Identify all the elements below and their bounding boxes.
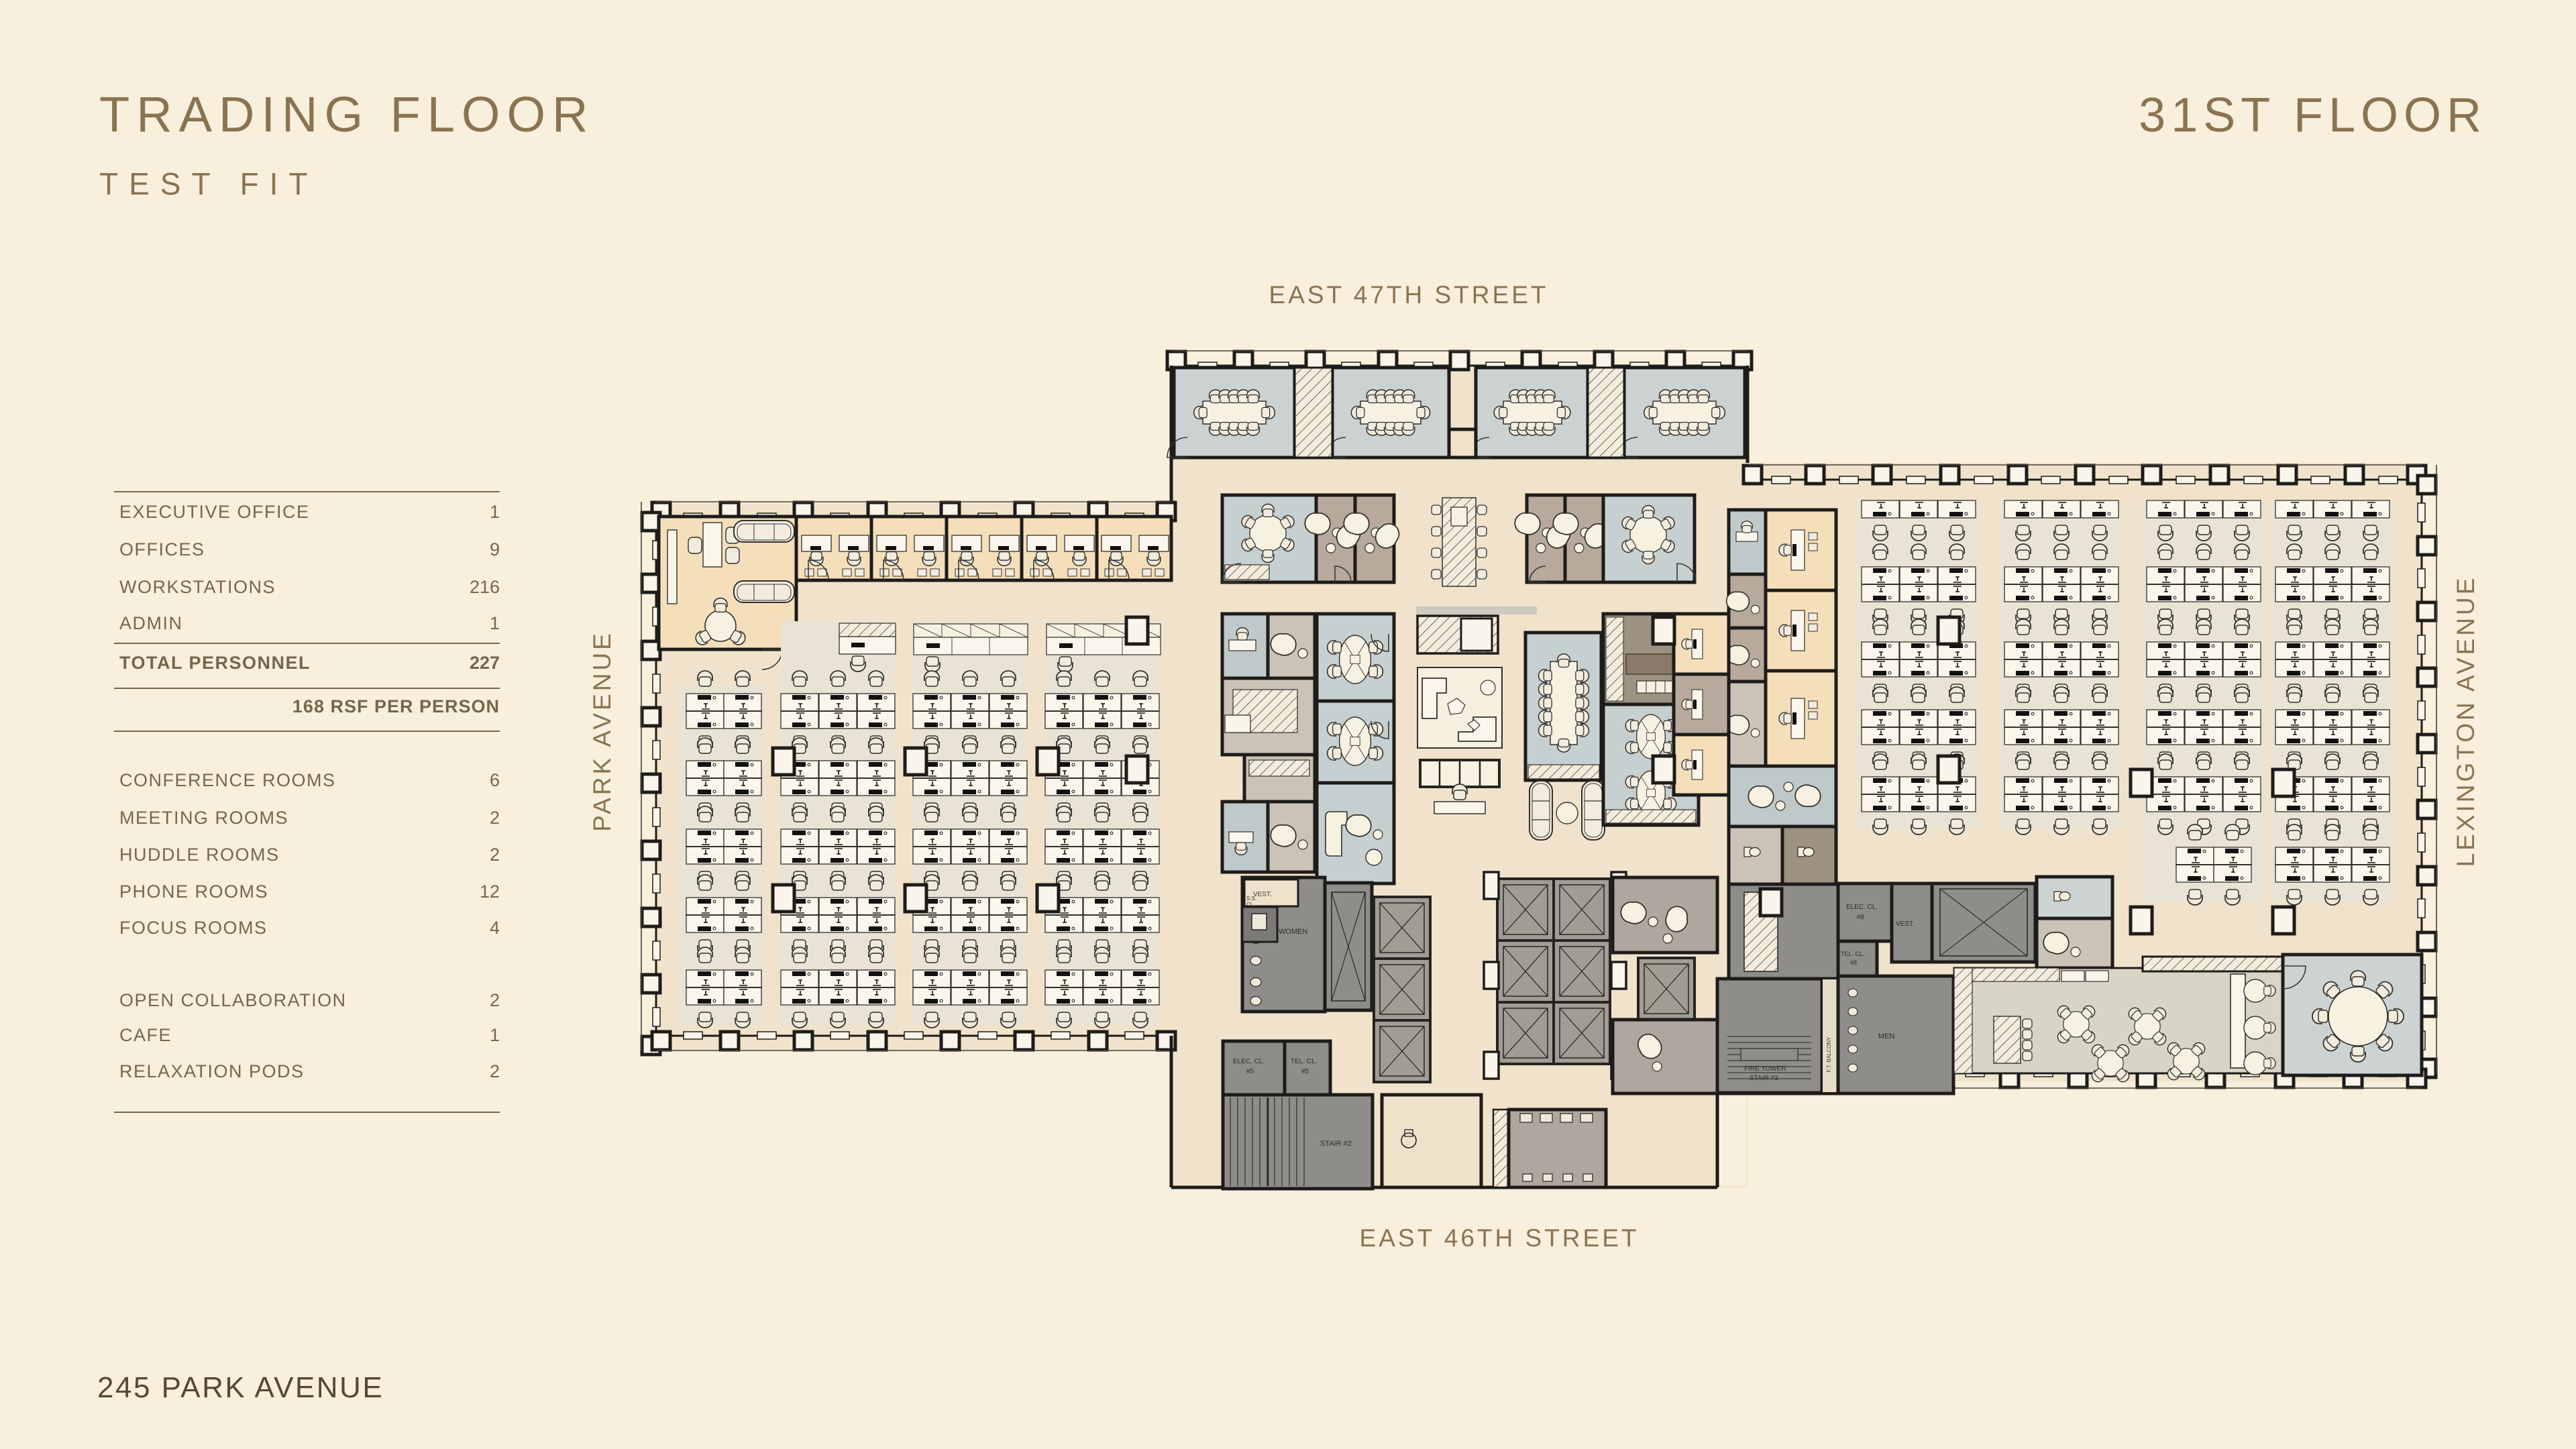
svg-text:#8: #8 xyxy=(1857,914,1865,921)
svg-text:HUDDLE ROOMS: HUDDLE ROOMS xyxy=(119,845,280,865)
svg-text:TRADING FLOOR: TRADING FLOOR xyxy=(99,87,594,142)
svg-text:1: 1 xyxy=(490,613,500,633)
svg-text:EAST 47TH STREET: EAST 47TH STREET xyxy=(1269,281,1549,309)
svg-text:FIRE TOWER: FIRE TOWER xyxy=(1744,1065,1786,1073)
svg-text:2: 2 xyxy=(490,990,500,1010)
svg-text:OPEN COLLABORATION: OPEN COLLABORATION xyxy=(119,990,347,1010)
svg-text:EXECUTIVE OFFICE: EXECUTIVE OFFICE xyxy=(119,502,310,522)
svg-text:2: 2 xyxy=(490,808,500,828)
svg-text:12: 12 xyxy=(480,881,500,902)
svg-text:MEETING ROOMS: MEETING ROOMS xyxy=(119,808,288,828)
svg-text:F.T. BALCONY: F.T. BALCONY xyxy=(1826,1036,1832,1073)
svg-text:OFFICES: OFFICES xyxy=(119,539,205,559)
svg-text:CONFERENCE ROOMS: CONFERENCE ROOMS xyxy=(119,770,336,790)
svg-text:VEST.: VEST. xyxy=(1896,920,1915,928)
svg-text:TEL. CL.: TEL. CL. xyxy=(1841,951,1865,957)
svg-text:WORKSTATIONS: WORKSTATIONS xyxy=(119,577,276,597)
svg-text:LEXINGTON AVENUE: LEXINGTON AVENUE xyxy=(2452,576,2479,867)
svg-text:2: 2 xyxy=(490,1061,500,1081)
svg-text:TEST FIT: TEST FIT xyxy=(99,166,319,201)
svg-text:1: 1 xyxy=(490,502,500,522)
svg-text:#5: #5 xyxy=(1246,1068,1254,1075)
svg-text:9: 9 xyxy=(490,539,500,559)
svg-text:STAIR #2: STAIR #2 xyxy=(1320,1140,1352,1148)
svg-text:PHONE ROOMS: PHONE ROOMS xyxy=(119,881,268,902)
svg-text:ADMIN: ADMIN xyxy=(119,613,183,633)
svg-text:FOCUS ROOMS: FOCUS ROOMS xyxy=(119,918,268,938)
svg-text:CL.: CL. xyxy=(1246,902,1254,908)
svg-text:4: 4 xyxy=(490,918,500,938)
svg-text:1: 1 xyxy=(490,1025,500,1045)
svg-text:WOMEN: WOMEN xyxy=(1279,928,1307,936)
svg-text:245 PARK AVENUE: 245 PARK AVENUE xyxy=(97,1371,384,1404)
svg-text:RELAXATION PODS: RELAXATION PODS xyxy=(119,1061,305,1081)
svg-text:227: 227 xyxy=(470,653,500,673)
svg-text:ELEC. CL.: ELEC. CL. xyxy=(1846,904,1878,911)
svg-text:ELEC. CL.: ELEC. CL. xyxy=(1233,1058,1265,1065)
svg-text:TEL. CL.: TEL. CL. xyxy=(1291,1058,1317,1065)
svg-text:TOTAL PERSONNEL: TOTAL PERSONNEL xyxy=(119,653,311,673)
svg-text:CAFE: CAFE xyxy=(119,1025,172,1045)
svg-text:#8: #8 xyxy=(1850,959,1857,966)
svg-text:31ST FLOOR: 31ST FLOOR xyxy=(2139,89,2487,142)
svg-text:216: 216 xyxy=(470,577,500,597)
svg-text:168 RSF PER PERSON: 168 RSF PER PERSON xyxy=(292,696,500,716)
svg-text:S.S.: S.S. xyxy=(1246,896,1256,902)
svg-text:6: 6 xyxy=(490,770,500,790)
svg-text:PARK AVENUE: PARK AVENUE xyxy=(588,631,616,832)
svg-text:EAST 46TH STREET: EAST 46TH STREET xyxy=(1360,1224,1640,1252)
svg-text:2: 2 xyxy=(490,845,500,865)
svg-text:#5: #5 xyxy=(1301,1068,1309,1075)
svg-text:MEN: MEN xyxy=(1878,1032,1895,1040)
svg-text:STAIR #3: STAIR #3 xyxy=(1750,1075,1778,1082)
